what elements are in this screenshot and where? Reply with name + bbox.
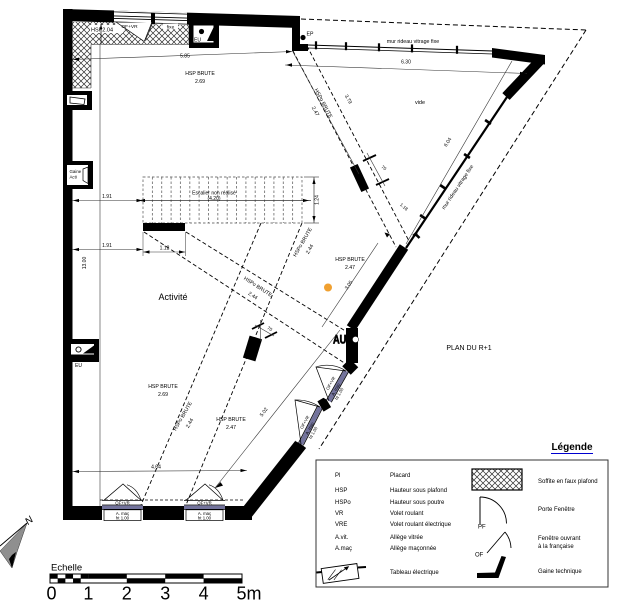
svg-text:Acti: Acti xyxy=(70,175,77,180)
svg-text:OF+VR: OF+VR xyxy=(197,501,211,506)
svg-text:Allège vitrée: Allège vitrée xyxy=(390,535,424,541)
svg-text:HSP BRUTE: HSP BRUTE xyxy=(335,257,365,263)
svg-text:EU: EU xyxy=(194,38,201,44)
svg-text:A.vit.: A.vit. xyxy=(335,535,349,541)
svg-text:EP: EP xyxy=(307,32,314,38)
svg-text:VRE: VRE xyxy=(335,522,347,528)
svg-text:HSP BRUTE: HSP BRUTE xyxy=(185,71,215,77)
svg-text:Fenêtre ouvrant: Fenêtre ouvrant xyxy=(538,536,581,542)
svg-text:à la française: à la française xyxy=(538,544,574,550)
svg-text:2: 2 xyxy=(122,584,132,600)
svg-text:Placard: Placard xyxy=(390,473,410,479)
svg-text:PF: PF xyxy=(478,525,486,531)
svg-text:Soffite en faux plafond: Soffite en faux plafond xyxy=(538,479,598,485)
svg-text:HSP: HSP xyxy=(335,488,347,494)
svg-text:VR: VR xyxy=(335,511,344,517)
svg-text:A.maç: A.maç xyxy=(335,546,352,552)
svg-text:mur rideau vitrage fixe: mur rideau vitrage fixe xyxy=(387,39,439,45)
svg-text:Gaine: Gaine xyxy=(70,169,82,174)
svg-text:OF: OF xyxy=(475,553,484,559)
svg-text:Hauteur sous plafond: Hauteur sous plafond xyxy=(390,488,447,494)
svg-text:2.69: 2.69 xyxy=(195,79,205,85)
svg-text:Volet roulant électrique: Volet roulant électrique xyxy=(390,522,452,528)
svg-text:2.69: 2.69 xyxy=(158,392,168,398)
svg-text:1: 1 xyxy=(83,584,93,600)
svg-text:Légende: Légende xyxy=(551,442,593,453)
svg-text:EU: EU xyxy=(75,363,82,369)
svg-text:Pl: Pl xyxy=(335,473,340,479)
svg-text:vide: vide xyxy=(415,100,425,106)
svg-text:OF+VR: OF+VR xyxy=(121,24,138,30)
svg-text:6.30: 6.30 xyxy=(401,60,411,66)
svg-text:fixe: fixe xyxy=(167,25,175,31)
svg-text:13.00: 13.00 xyxy=(82,257,88,270)
svg-text:4: 4 xyxy=(199,584,209,600)
svg-text:0: 0 xyxy=(46,584,56,600)
svg-text:1.91: 1.91 xyxy=(102,194,112,200)
svg-text:Echelle: Echelle xyxy=(51,563,82,574)
svg-text:1.12: 1.12 xyxy=(160,246,170,252)
svg-text:(4.20): (4.20) xyxy=(207,196,220,202)
svg-text:3: 3 xyxy=(160,584,170,600)
svg-text:HSPo: HSPo xyxy=(335,500,351,506)
svg-text:HSP BRUTE: HSP BRUTE xyxy=(148,384,178,390)
svg-text:HSP BRUTE: HSP BRUTE xyxy=(216,417,246,423)
svg-text:OF+VR: OF+VR xyxy=(115,501,129,506)
svg-text:1.24: 1.24 xyxy=(315,195,321,205)
svg-text:4.64: 4.64 xyxy=(151,465,161,471)
svg-text:2.47: 2.47 xyxy=(226,425,236,431)
svg-text:Gaine technique: Gaine technique xyxy=(538,569,582,575)
svg-text:AUX: AUX xyxy=(333,335,353,347)
svg-text:ht 1.00: ht 1.00 xyxy=(116,516,130,521)
svg-text:ht 1.00: ht 1.00 xyxy=(198,516,212,521)
svg-text:Tableau électrique: Tableau électrique xyxy=(390,570,439,576)
svg-text:PLAN DU R+1: PLAN DU R+1 xyxy=(446,345,491,352)
svg-text:Porte Fenêtre: Porte Fenêtre xyxy=(538,507,575,513)
svg-text:Hauteur sous poutre: Hauteur sous poutre xyxy=(390,500,445,506)
svg-text:2.47: 2.47 xyxy=(345,265,355,271)
svg-text:5.85: 5.85 xyxy=(180,54,190,60)
svg-text:Allège maçonnée: Allège maçonnée xyxy=(390,546,437,552)
svg-text:5m: 5m xyxy=(236,584,261,600)
svg-text:Volet roulant: Volet roulant xyxy=(390,511,424,517)
svg-text:Activité: Activité xyxy=(158,292,187,302)
svg-text:1.91: 1.91 xyxy=(102,243,112,249)
